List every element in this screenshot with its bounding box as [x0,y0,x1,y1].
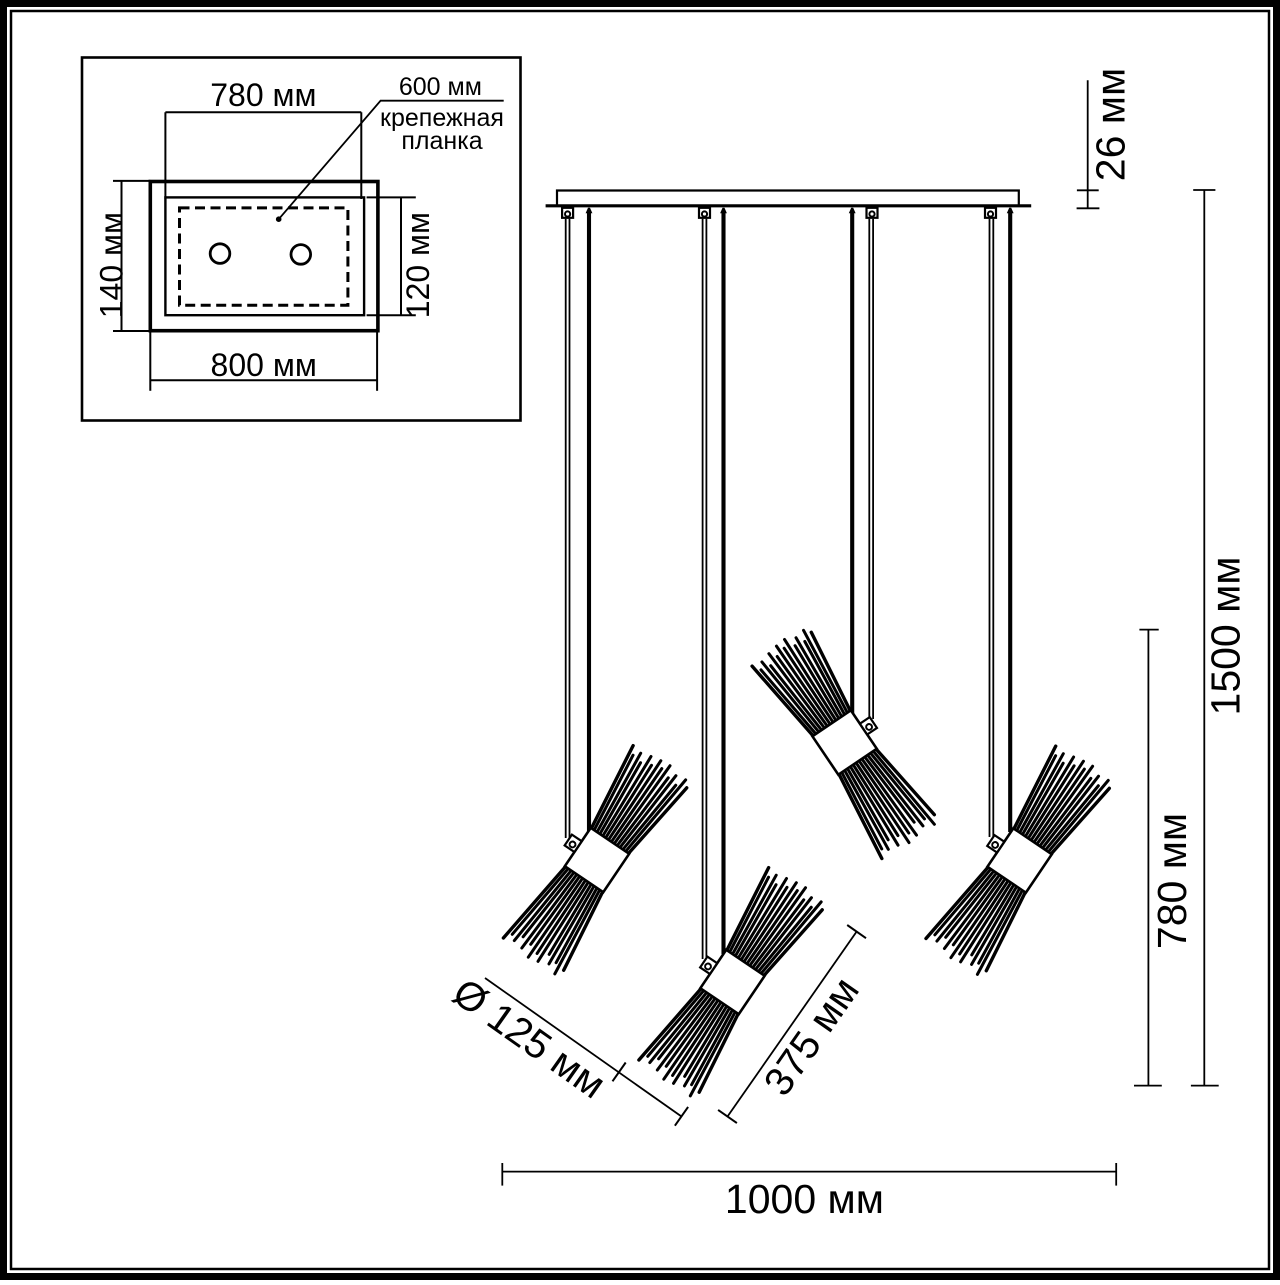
svg-text:600 мм: 600 мм [399,73,482,101]
svg-text:1500 мм: 1500 мм [1203,557,1249,716]
svg-text:1000 мм: 1000 мм [725,1176,884,1222]
svg-text:140 мм: 140 мм [94,212,130,318]
svg-text:780 мм: 780 мм [1149,813,1195,949]
svg-text:120 мм: 120 мм [400,212,436,318]
svg-text:планка: планка [401,127,482,155]
svg-text:26 мм: 26 мм [1088,68,1134,181]
svg-text:780 мм: 780 мм [210,77,316,113]
svg-text:800 мм: 800 мм [211,347,317,383]
